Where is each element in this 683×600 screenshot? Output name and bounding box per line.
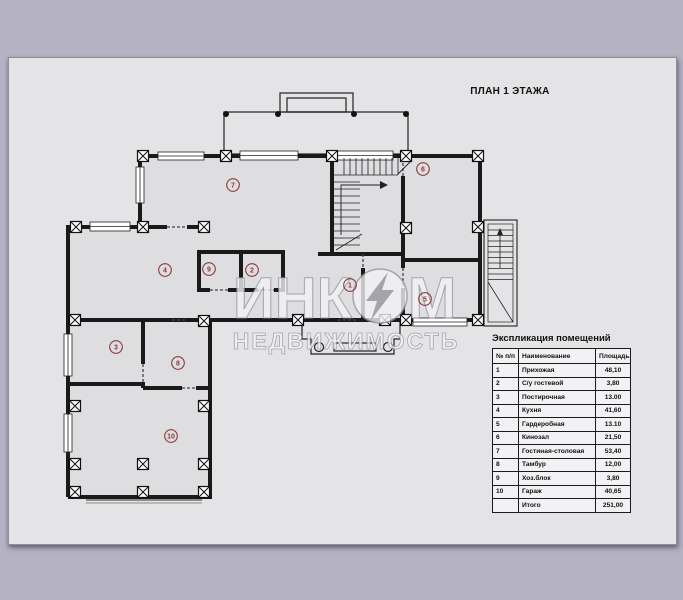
table-row: 5Гардеробная13.10 <box>493 418 631 432</box>
table-row: 1Прихожая48,10 <box>493 364 631 378</box>
table-row: 9Хоз.блок3,80 <box>493 472 631 486</box>
cell-area: 41,60 <box>596 404 631 418</box>
garage-door <box>86 500 202 503</box>
cell-name: Кухня <box>519 404 596 418</box>
cell-name: Прихожая <box>519 364 596 378</box>
cell-name: Итого <box>519 499 596 513</box>
svg-text:9: 9 <box>207 266 211 273</box>
cell-name: Гостиная-столовая <box>519 445 596 459</box>
table-row: 10Гараж40,65 <box>493 485 631 499</box>
cell-name: Постирочная <box>519 391 596 405</box>
cell-num: 5 <box>493 418 519 432</box>
watermark-line2: НЕДВИЖИМОСТЬ <box>233 328 459 354</box>
cell-num: 3 <box>493 391 519 405</box>
table-row: 2С/у гостевой3,80 <box>493 377 631 391</box>
header-area: Площадь, м2 <box>596 349 631 364</box>
svg-text:7: 7 <box>231 182 235 189</box>
cell-num: 10 <box>493 485 519 499</box>
cell-area: 40,65 <box>596 485 631 499</box>
cell-area: 3,80 <box>596 472 631 486</box>
cell-num: 7 <box>493 445 519 459</box>
header-num: № п/п <box>493 349 519 364</box>
cell-num: 2 <box>493 377 519 391</box>
table-row: 8Тамбур12,00 <box>493 458 631 472</box>
plan-title: ПЛАН 1 ЭТАЖА <box>450 86 570 97</box>
cell-num: 8 <box>493 458 519 472</box>
table-row: 4Кухня41,60 <box>493 404 631 418</box>
cell-name: Тамбур <box>519 458 596 472</box>
table-header-row: № п/п Наименование Площадь, м2 <box>493 349 631 364</box>
svg-text:10: 10 <box>167 433 175 440</box>
svg-text:6: 6 <box>421 166 425 173</box>
cell-area: 3,80 <box>596 377 631 391</box>
watermark-text-right: М <box>408 266 456 331</box>
cell-area: 251,00 <box>596 499 631 513</box>
incom-watermark: ИНК М НЕДВИЖИМОСТЬ <box>233 266 459 354</box>
svg-text:2: 2 <box>250 267 254 274</box>
cell-area: 53,40 <box>596 445 631 459</box>
cell-area: 12,00 <box>596 458 631 472</box>
cell-num: 4 <box>493 404 519 418</box>
table-row: 3Постирочная13.00 <box>493 391 631 405</box>
cell-area: 48,10 <box>596 364 631 378</box>
cell-name: Гардеробная <box>519 418 596 432</box>
svg-text:1: 1 <box>348 282 352 289</box>
table-row: 7Гостиная-столовая53,40 <box>493 445 631 459</box>
cell-num: 6 <box>493 431 519 445</box>
svg-text:3: 3 <box>114 344 118 351</box>
cell-num <box>493 499 519 513</box>
cell-area: 13.10 <box>596 418 631 432</box>
explication-title: Экспликация помещений <box>492 333 632 344</box>
svg-text:4: 4 <box>163 267 167 274</box>
cell-area: 13.00 <box>596 391 631 405</box>
cell-name: Хоз.блок <box>519 472 596 486</box>
svg-text:5: 5 <box>423 296 427 303</box>
table-row-total: Итого251,00 <box>493 499 631 513</box>
svg-text:8: 8 <box>176 360 180 367</box>
cell-area: 21,50 <box>596 431 631 445</box>
cell-name: Кинозал <box>519 431 596 445</box>
terrace <box>223 93 409 154</box>
header-name: Наименование <box>519 349 596 364</box>
external-stairs <box>484 220 517 326</box>
cell-name: С/у гостевой <box>519 377 596 391</box>
cell-num: 1 <box>493 364 519 378</box>
cell-num: 9 <box>493 472 519 486</box>
table-row: 6Кинозал21,50 <box>493 431 631 445</box>
explication-table: № п/п Наименование Площадь, м2 1Прихожая… <box>492 348 631 513</box>
explication-section: Экспликация помещений № п/п Наименование… <box>492 333 632 513</box>
cell-name: Гараж <box>519 485 596 499</box>
